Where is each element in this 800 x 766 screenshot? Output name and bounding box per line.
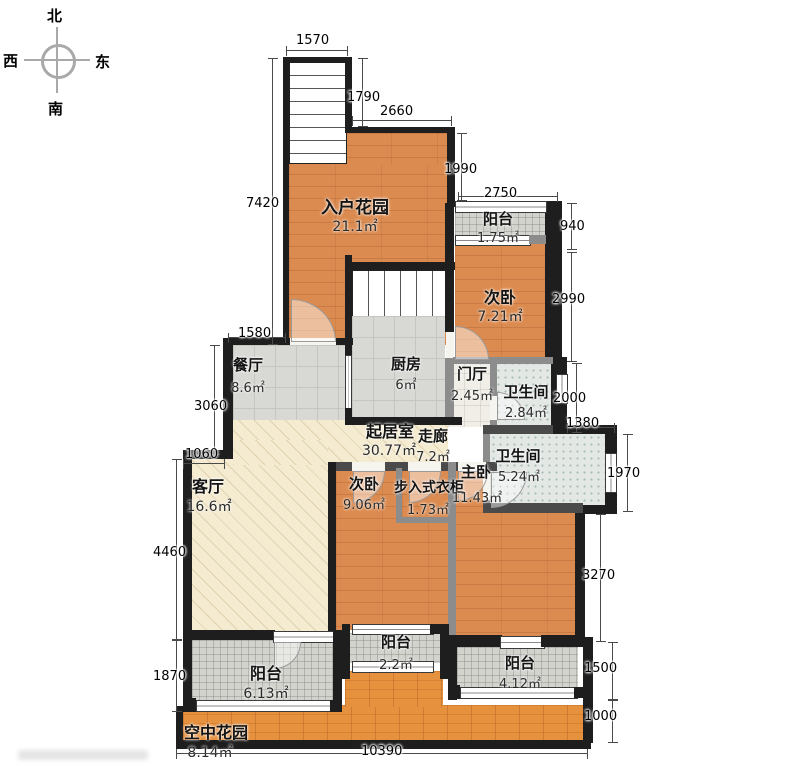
partition bbox=[483, 425, 553, 434]
dim-2990: 2990 bbox=[552, 292, 585, 307]
balcony-top-area: 1.75㎡ bbox=[468, 227, 528, 246]
master-balcony-window bbox=[500, 636, 545, 649]
bedroom-top-label: 次卧 bbox=[470, 284, 530, 308]
dim-2660: 2660 bbox=[380, 104, 413, 119]
wall bbox=[583, 637, 593, 743]
dim-1380: 1380 bbox=[566, 416, 599, 431]
bedroom-top-door-opening bbox=[446, 332, 454, 358]
dim-3060: 3060 bbox=[194, 399, 227, 414]
lounge-area: 16.6㎡ bbox=[180, 496, 238, 516]
staircase-mid bbox=[352, 270, 450, 317]
bath-upper-area: 2.84㎡ bbox=[498, 402, 554, 421]
compass-east-label: 东 bbox=[95, 51, 110, 72]
dim-line bbox=[352, 120, 452, 121]
bedroom-mid-label: 次卧 bbox=[338, 473, 390, 494]
bedroom-mid-door-opening bbox=[352, 462, 385, 471]
wall bbox=[345, 255, 352, 347]
lounge-label: 客厅 bbox=[182, 473, 234, 497]
sky-garden-label: 空中花园 bbox=[172, 719, 260, 743]
foyer-label: 门厅 bbox=[448, 363, 496, 384]
watermark bbox=[18, 750, 148, 760]
bath-upper-label: 卫生间 bbox=[496, 381, 556, 402]
wall bbox=[448, 685, 460, 699]
dim-1970: 1970 bbox=[607, 466, 640, 481]
dim-1500: 1500 bbox=[584, 661, 617, 676]
bedroom-top-area: 7.21㎡ bbox=[470, 306, 530, 326]
wall bbox=[580, 505, 617, 514]
entry-garden-area: 21.1㎡ bbox=[300, 216, 410, 236]
entry-garden-floor-upper bbox=[345, 133, 447, 165]
wall bbox=[330, 700, 342, 712]
compass-circle-icon bbox=[41, 44, 76, 79]
sky-garden-area: 8.14㎡ bbox=[180, 742, 240, 762]
bath-lower-label: 卫生间 bbox=[488, 445, 548, 466]
wall bbox=[328, 462, 336, 634]
wall bbox=[345, 127, 455, 133]
dim-line bbox=[183, 463, 225, 464]
dining-label: 餐厅 bbox=[222, 354, 274, 375]
wall bbox=[345, 262, 455, 270]
master-area: 11.43㎡ bbox=[446, 487, 508, 506]
kitchen-area: 6㎡ bbox=[378, 374, 434, 393]
dim-2750: 2750 bbox=[484, 186, 517, 201]
balcony-top-label: 阳台 bbox=[468, 208, 528, 229]
staircase-top bbox=[289, 62, 347, 164]
dim-line bbox=[571, 252, 572, 362]
wall bbox=[183, 630, 275, 640]
wall bbox=[445, 203, 454, 332]
dim-1580: 1580 bbox=[238, 326, 271, 341]
dim-940: 940 bbox=[560, 219, 585, 234]
dim-3270: 3270 bbox=[582, 568, 615, 583]
wall bbox=[342, 624, 350, 679]
balcony-left-label: 阳台 bbox=[238, 660, 294, 684]
partition bbox=[529, 235, 546, 244]
sky-garden-floor-mid bbox=[345, 671, 443, 707]
bedroom-mid-area: 9.06㎡ bbox=[336, 494, 392, 513]
balcony-mid-area: 2.2㎡ bbox=[368, 654, 424, 673]
wall bbox=[283, 57, 352, 63]
balcony-left-area: 6.13㎡ bbox=[236, 683, 296, 703]
corridor-label: 走廊 bbox=[410, 425, 456, 446]
dim-2000: 2000 bbox=[553, 391, 586, 406]
dim-4460: 4460 bbox=[153, 545, 186, 560]
compass-south-label: 南 bbox=[48, 98, 63, 119]
dim-1570: 1570 bbox=[296, 33, 329, 48]
dim-line bbox=[286, 50, 348, 51]
foyer-area: 2.45㎡ bbox=[446, 385, 498, 404]
wall bbox=[541, 635, 585, 647]
bath-lower-area: 5.24㎡ bbox=[492, 466, 546, 485]
dim-1990: 1990 bbox=[444, 162, 477, 177]
dim-1790: 1790 bbox=[347, 90, 380, 105]
lounge-floor-upper bbox=[233, 440, 328, 465]
floor-plan: 北 西 东 南 bbox=[0, 0, 800, 766]
master-floor-main bbox=[455, 512, 575, 637]
corridor-area: 7.2㎡ bbox=[408, 446, 458, 465]
compass-north-label: 北 bbox=[47, 5, 62, 26]
kitchen-label: 厨房 bbox=[378, 353, 434, 374]
balcony-right-area: 4.12㎡ bbox=[490, 673, 550, 692]
dining-area: 8.6㎡ bbox=[220, 377, 276, 396]
dim-1000: 1000 bbox=[584, 709, 617, 724]
dim-1060: 1060 bbox=[185, 447, 218, 462]
wall bbox=[574, 687, 584, 698]
dim-7420: 7420 bbox=[246, 196, 279, 211]
balcony-right-label: 阳台 bbox=[492, 652, 548, 673]
kitchen-window bbox=[345, 355, 352, 412]
entry-garden-label: 入户花园 bbox=[300, 193, 410, 218]
compass-west-label: 西 bbox=[3, 50, 18, 71]
dim-1870: 1870 bbox=[153, 669, 186, 684]
dim-10390: 10390 bbox=[361, 744, 402, 759]
wall bbox=[183, 698, 196, 712]
wall bbox=[283, 57, 289, 345]
balcony-mid-label: 阳台 bbox=[370, 631, 422, 652]
compass: 北 西 东 南 bbox=[0, 0, 120, 120]
